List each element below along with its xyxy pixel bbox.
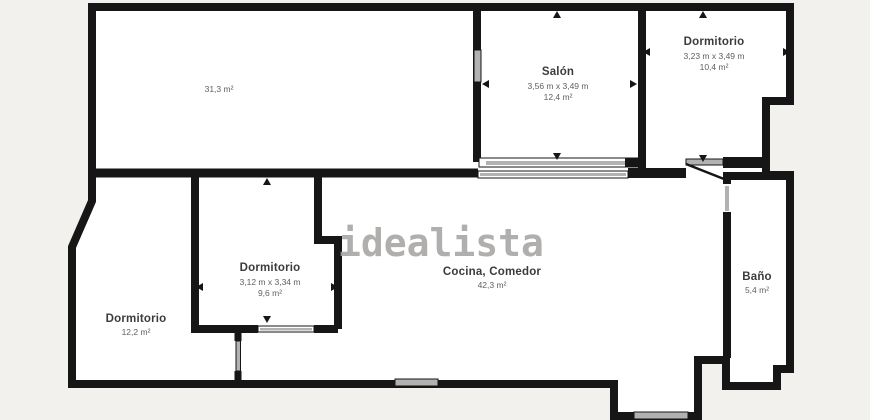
room-area: 12,4 m² xyxy=(528,92,589,102)
building-outline xyxy=(72,7,790,416)
room-label-dormitorio-derecha: Dormitorio 3,23 m x 3,49 m 10,4 m² xyxy=(684,36,745,73)
room-name: Cocina, Comedor xyxy=(443,266,541,279)
room-dimensions: 3,56 m x 3,49 m xyxy=(528,81,589,91)
idealista-watermark: idealista xyxy=(338,224,558,262)
door-dormitorio-derecha xyxy=(686,159,723,165)
room-area: 42,3 m² xyxy=(443,280,541,290)
room-label-salon: Salón 3,56 m x 3,49 m 12,4 m² xyxy=(528,66,589,103)
window-bottom xyxy=(395,379,438,386)
room-name: Dormitorio xyxy=(240,262,301,275)
room-name: Baño xyxy=(742,271,772,284)
door-dormitorio-izquierda xyxy=(236,341,241,371)
window-salon-left xyxy=(474,50,481,82)
room-area: 5,4 m² xyxy=(742,285,772,295)
floorplan-image: idealista 31,3 m² Salón 3,56 m x 3,49 m … xyxy=(0,0,870,420)
room-label-bano: Baño 5,4 m² xyxy=(742,271,772,295)
room-dimensions: 3,23 m x 3,49 m xyxy=(684,51,745,61)
room-dimensions: 3,12 m x 3,34 m xyxy=(240,277,301,287)
window-bottom-bay xyxy=(634,412,688,419)
room-area: 10,4 m² xyxy=(684,62,745,72)
room-name: Salón xyxy=(528,66,589,79)
room-label-sala-grande: 31,3 m² xyxy=(205,83,234,94)
room-name: Dormitorio xyxy=(106,313,167,326)
door-bano xyxy=(725,186,729,211)
room-area: 12,2 m² xyxy=(106,327,167,337)
room-name: Dormitorio xyxy=(684,36,745,49)
room-area: 31,3 m² xyxy=(205,84,234,94)
room-label-dormitorio-izquierda: Dormitorio 12,2 m² xyxy=(106,313,167,337)
room-label-dormitorio-centro: Dormitorio 3,12 m x 3,34 m 9,6 m² xyxy=(240,262,301,299)
room-area: 9,6 m² xyxy=(240,288,301,298)
room-label-cocina-comedor: Cocina, Comedor 42,3 m² xyxy=(443,266,541,290)
